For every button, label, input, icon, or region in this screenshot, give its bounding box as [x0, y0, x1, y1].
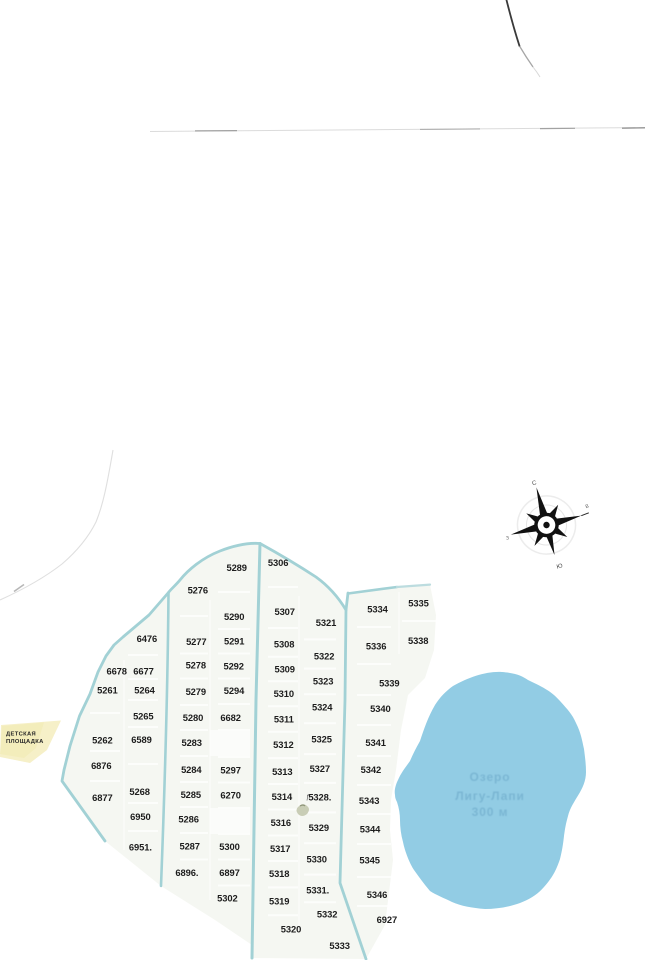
svg-text:ПЛОЩАДКА: ПЛОЩАДКА: [6, 739, 44, 745]
svg-text:5318: 5318: [269, 868, 289, 879]
svg-text:5297: 5297: [220, 764, 240, 775]
svg-text:6270: 6270: [220, 790, 240, 801]
svg-text:6951.: 6951.: [129, 842, 152, 853]
svg-text:300 м: 300 м: [472, 805, 509, 819]
svg-text:6476: 6476: [137, 633, 157, 644]
svg-text:5316: 5316: [271, 817, 291, 828]
svg-text:5280: 5280: [183, 712, 203, 723]
svg-text:6677: 6677: [133, 666, 153, 677]
svg-text:6896.: 6896.: [175, 867, 198, 878]
svg-text:5300: 5300: [219, 841, 239, 852]
svg-text:5346: 5346: [367, 889, 387, 900]
svg-text:5312: 5312: [273, 739, 293, 750]
svg-text:5261: 5261: [97, 684, 117, 695]
svg-text:5336: 5336: [366, 641, 386, 652]
svg-text:5332: 5332: [317, 909, 337, 920]
svg-text:5339: 5339: [379, 677, 399, 688]
svg-text:6877: 6877: [92, 792, 112, 803]
svg-text:5330: 5330: [306, 853, 326, 864]
svg-text:Лигу-Лапи: Лигу-Лапи: [455, 789, 525, 803]
svg-text:Озеро: Озеро: [470, 770, 511, 784]
svg-text:5306: 5306: [268, 557, 288, 568]
svg-text:6678: 6678: [106, 666, 126, 677]
svg-text:5329: 5329: [309, 822, 329, 833]
svg-text:5287: 5287: [179, 841, 199, 852]
svg-text:5279: 5279: [186, 686, 206, 697]
svg-text:5343: 5343: [359, 795, 379, 806]
svg-text:ƒ: ƒ: [306, 794, 310, 801]
svg-text:5342: 5342: [361, 764, 381, 775]
svg-text:C: C: [532, 480, 538, 487]
svg-text:5317: 5317: [270, 843, 290, 854]
svg-text:5313: 5313: [272, 766, 292, 777]
svg-text:5328.: 5328.: [308, 791, 331, 802]
svg-text:ДЕТСКАЯ: ДЕТСКАЯ: [6, 732, 36, 738]
svg-text:5292: 5292: [223, 661, 243, 672]
svg-text:5278: 5278: [186, 660, 206, 671]
svg-text:5333: 5333: [329, 940, 349, 951]
svg-text:5262: 5262: [92, 735, 112, 746]
svg-text:5338: 5338: [408, 635, 428, 646]
svg-text:5324: 5324: [312, 702, 333, 713]
svg-text:5276: 5276: [188, 585, 208, 596]
svg-text:6897: 6897: [219, 867, 239, 878]
svg-text:6950: 6950: [130, 811, 150, 822]
svg-text:5284: 5284: [181, 764, 202, 775]
svg-text:5286: 5286: [178, 814, 198, 825]
svg-text:5323: 5323: [313, 676, 333, 687]
svg-text:5314: 5314: [272, 791, 293, 802]
svg-text:В: В: [585, 503, 590, 510]
svg-text:5322: 5322: [314, 650, 334, 661]
svg-text:5345: 5345: [359, 854, 379, 865]
svg-text:5289: 5289: [226, 562, 246, 573]
svg-text:5311: 5311: [274, 713, 294, 724]
svg-text:5290: 5290: [224, 611, 244, 622]
svg-text:5264: 5264: [134, 684, 155, 695]
svg-text:5309: 5309: [274, 663, 294, 674]
svg-text:5321: 5321: [316, 617, 336, 628]
svg-text:6876: 6876: [91, 760, 111, 771]
svg-text:6682: 6682: [220, 712, 240, 723]
svg-text:6927: 6927: [377, 914, 397, 925]
svg-text:5294: 5294: [224, 685, 245, 696]
svg-text:5320: 5320: [281, 924, 301, 935]
svg-text:5283: 5283: [181, 737, 201, 748]
svg-text:5277: 5277: [186, 636, 206, 647]
svg-text:5310: 5310: [274, 688, 294, 699]
svg-text:5285: 5285: [181, 789, 201, 800]
svg-text:5340: 5340: [370, 703, 390, 714]
svg-text:5302: 5302: [217, 892, 237, 903]
svg-text:6589: 6589: [131, 734, 151, 745]
svg-text:5335: 5335: [408, 598, 428, 609]
svg-text:5268: 5268: [129, 786, 149, 797]
svg-text:5307: 5307: [274, 606, 294, 617]
svg-text:Ю: Ю: [556, 563, 563, 570]
svg-text:5334: 5334: [367, 604, 388, 615]
svg-text:5341: 5341: [365, 737, 385, 748]
svg-text:З: З: [505, 535, 509, 542]
svg-text:5319: 5319: [269, 896, 289, 907]
svg-text:5291: 5291: [224, 635, 244, 646]
svg-text:5331.: 5331.: [306, 885, 329, 896]
svg-text:5325: 5325: [311, 734, 331, 745]
svg-text:5344: 5344: [360, 823, 381, 834]
svg-text:5308: 5308: [274, 639, 294, 650]
svg-text:5327: 5327: [310, 763, 330, 774]
svg-text:5265: 5265: [133, 710, 153, 721]
